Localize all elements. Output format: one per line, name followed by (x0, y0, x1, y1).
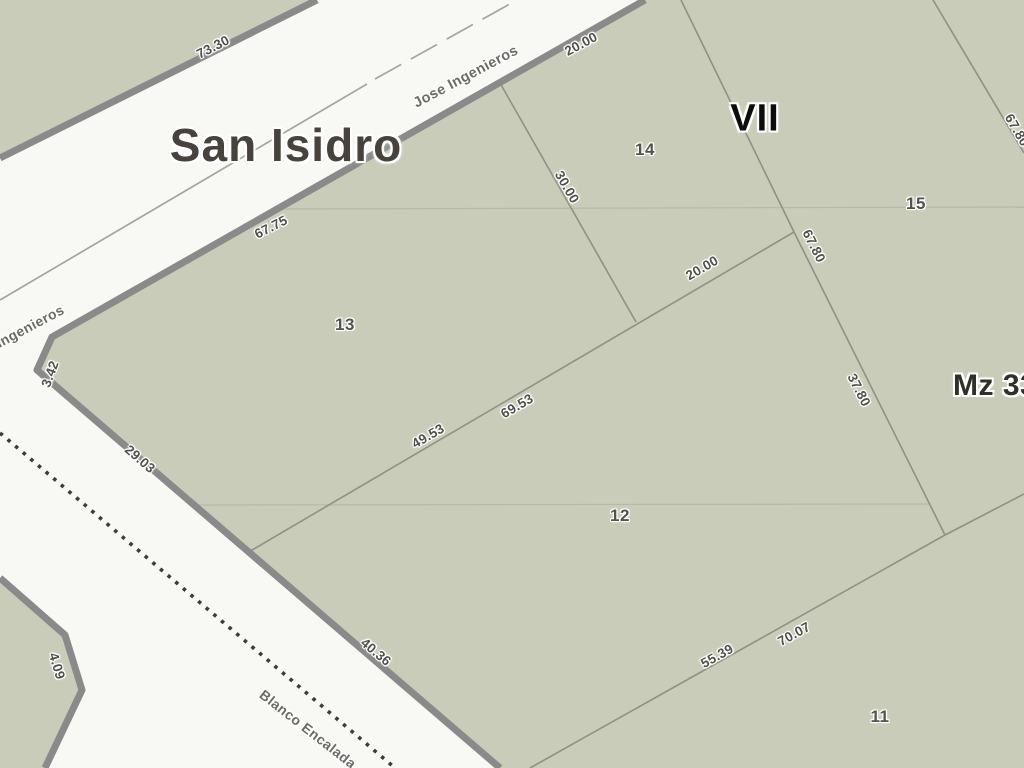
parcel-line-11-12 (530, 535, 945, 768)
block-label: Mz 33 (953, 369, 1024, 403)
faint-boundary-line-lower (193, 504, 929, 505)
parcel-number-13: 13 (335, 315, 355, 335)
parcel-line-12-15 (794, 232, 945, 535)
region-label: San Isidro (170, 118, 402, 172)
parcel-number-15: 15 (906, 194, 926, 214)
parcel-line-11-15 (945, 494, 1024, 535)
cadastral-map-canvas[interactable]: San Isidro VII Mz 33 Jose Ingenieros ing… (0, 0, 1024, 768)
parcel-number-12: 12 (610, 506, 630, 526)
road-area (0, 0, 645, 768)
parcel-number-14: 14 (635, 140, 655, 160)
parcel-number-11: 11 (871, 707, 890, 727)
map-geometry-layer (0, 0, 1024, 768)
section-label: VII (730, 98, 779, 141)
